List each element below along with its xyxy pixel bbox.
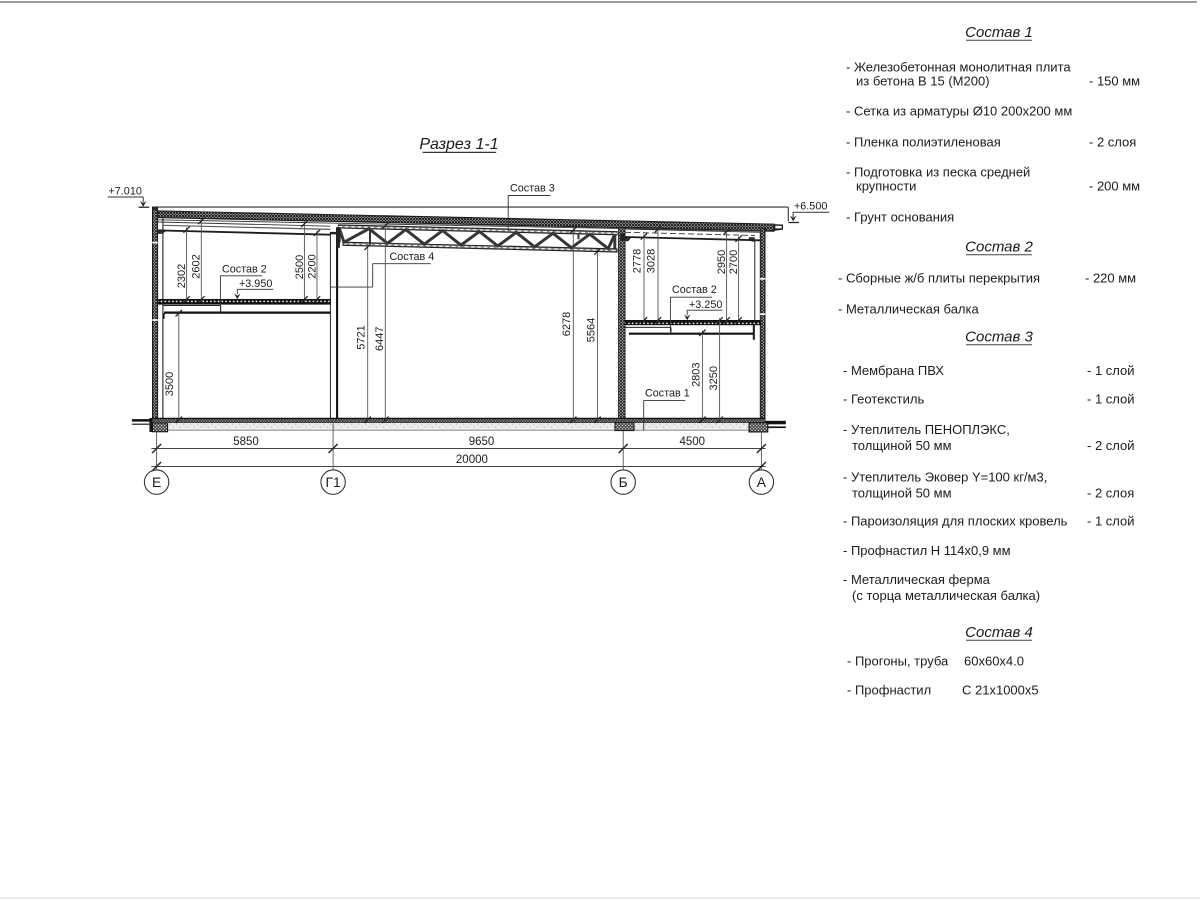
svg-text:Б: Б [619, 475, 628, 490]
svg-text:2200: 2200 [306, 254, 318, 278]
svg-text:60х60х4.0: 60х60х4.0 [964, 654, 1024, 669]
svg-text:- Пленка полиэтиленовая: - Пленка полиэтиленовая [846, 135, 1001, 150]
svg-text:- 200 мм: - 200 мм [1089, 179, 1140, 194]
svg-text:+3.250: +3.250 [689, 299, 722, 311]
svg-text:- Металлическая балка: - Металлическая балка [838, 302, 979, 317]
svg-text:Г1: Г1 [326, 475, 341, 490]
svg-text:3250: 3250 [708, 366, 720, 390]
svg-text:- Пароизоляция для плоских кро: - Пароизоляция для плоских кровель [843, 514, 1068, 529]
svg-text:- 2 слоя: - 2 слоя [1087, 486, 1134, 501]
svg-text:9650: 9650 [469, 436, 495, 448]
svg-text:5850: 5850 [233, 436, 259, 448]
svg-text:Состав 3: Состав 3 [510, 183, 555, 195]
svg-text:- 150 мм: - 150 мм [1089, 74, 1140, 89]
svg-text:Состав 4: Состав 4 [390, 251, 435, 263]
svg-text:2602: 2602 [191, 254, 203, 278]
svg-text:- 1 слой: - 1 слой [1087, 514, 1135, 529]
svg-text:- Мембрана ПВХ: - Мембрана ПВХ [843, 363, 944, 378]
svg-text:2700: 2700 [728, 250, 740, 274]
svg-text:Состав 3: Состав 3 [965, 329, 1033, 346]
svg-text:- 1 слой: - 1 слой [1087, 363, 1135, 378]
svg-text:Состав 2: Состав 2 [672, 284, 717, 296]
svg-text:- Железобетонная монолитная п: - Железобетонная монолитная плита [846, 60, 1071, 75]
svg-text:6447: 6447 [374, 327, 386, 351]
svg-text:+6.500: +6.500 [794, 201, 827, 213]
svg-text:Разрез 1-1: Разрез 1-1 [419, 136, 498, 153]
svg-text:А: А [757, 475, 767, 490]
svg-text:- Грунт основания: - Грунт основания [846, 210, 954, 225]
svg-text:толщиной 50 мм: толщиной 50 мм [852, 486, 952, 501]
svg-text:Состав 1: Состав 1 [645, 388, 690, 400]
svg-text:- 2 слоя: - 2 слоя [1089, 135, 1136, 150]
svg-text:- Металлическая ферма: - Металлическая ферма [843, 572, 991, 587]
svg-text:2302: 2302 [176, 264, 188, 288]
svg-text:- Утеплитель ПЕНОПЛЭКС,: - Утеплитель ПЕНОПЛЭКС, [843, 422, 1010, 437]
svg-text:- Прогоны, труба: - Прогоны, труба [847, 654, 949, 669]
svg-text:Состав 1: Состав 1 [965, 24, 1033, 41]
svg-text:3028: 3028 [645, 249, 657, 273]
svg-text:Е: Е [152, 475, 161, 490]
svg-text:2778: 2778 [631, 249, 643, 273]
svg-text:20000: 20000 [456, 454, 488, 466]
svg-text:- Сетка из арматуры Ø10 200х20: - Сетка из арматуры Ø10 200х200 мм [846, 104, 1072, 119]
svg-text:из бетона В 15 (М200): из бетона В 15 (М200) [856, 74, 990, 89]
svg-text:2803: 2803 [690, 362, 702, 386]
svg-text:- 220 мм: - 220 мм [1085, 271, 1136, 286]
svg-text:Состав 4: Состав 4 [965, 624, 1033, 641]
svg-text:(с торца металлическая балка): (с торца металлическая балка) [852, 588, 1040, 603]
svg-text:- Профнастил Н 114х0,9 мм: - Профнастил Н 114х0,9 мм [843, 543, 1011, 558]
svg-text:- 1 слой: - 1 слой [1087, 392, 1135, 407]
svg-text:2950: 2950 [716, 250, 728, 274]
svg-text:5564: 5564 [586, 318, 598, 342]
svg-text:толщиной 50 мм: толщиной 50 мм [852, 438, 952, 453]
svg-text:4500: 4500 [680, 436, 706, 448]
svg-text:- Подготовка из песка средней: - Подготовка из песка средней [846, 165, 1030, 180]
svg-text:- Утеплитель Эковер Y=100 кг/м: - Утеплитель Эковер Y=100 кг/м3, [843, 470, 1047, 485]
svg-text:С 21х1000х5: С 21х1000х5 [962, 683, 1039, 698]
svg-text:6278: 6278 [561, 312, 573, 336]
svg-text:- 2 слой: - 2 слой [1087, 438, 1135, 453]
svg-text:Состав 2: Состав 2 [222, 263, 267, 275]
svg-text:+7.010: +7.010 [109, 185, 142, 197]
svg-text:- Геотекстиль: - Геотекстиль [843, 392, 924, 407]
svg-text:- Сборные ж/б плиты перекрытия: - Сборные ж/б плиты перекрытия [838, 271, 1040, 286]
svg-text:- Профнастил: - Профнастил [847, 683, 931, 698]
svg-text:2500: 2500 [294, 255, 306, 279]
svg-text:крупности: крупности [856, 179, 916, 194]
svg-text:5721: 5721 [356, 325, 368, 349]
svg-text:Состав 2: Состав 2 [965, 239, 1033, 256]
svg-text:+3.950: +3.950 [239, 278, 272, 290]
svg-text:3500: 3500 [164, 372, 176, 396]
